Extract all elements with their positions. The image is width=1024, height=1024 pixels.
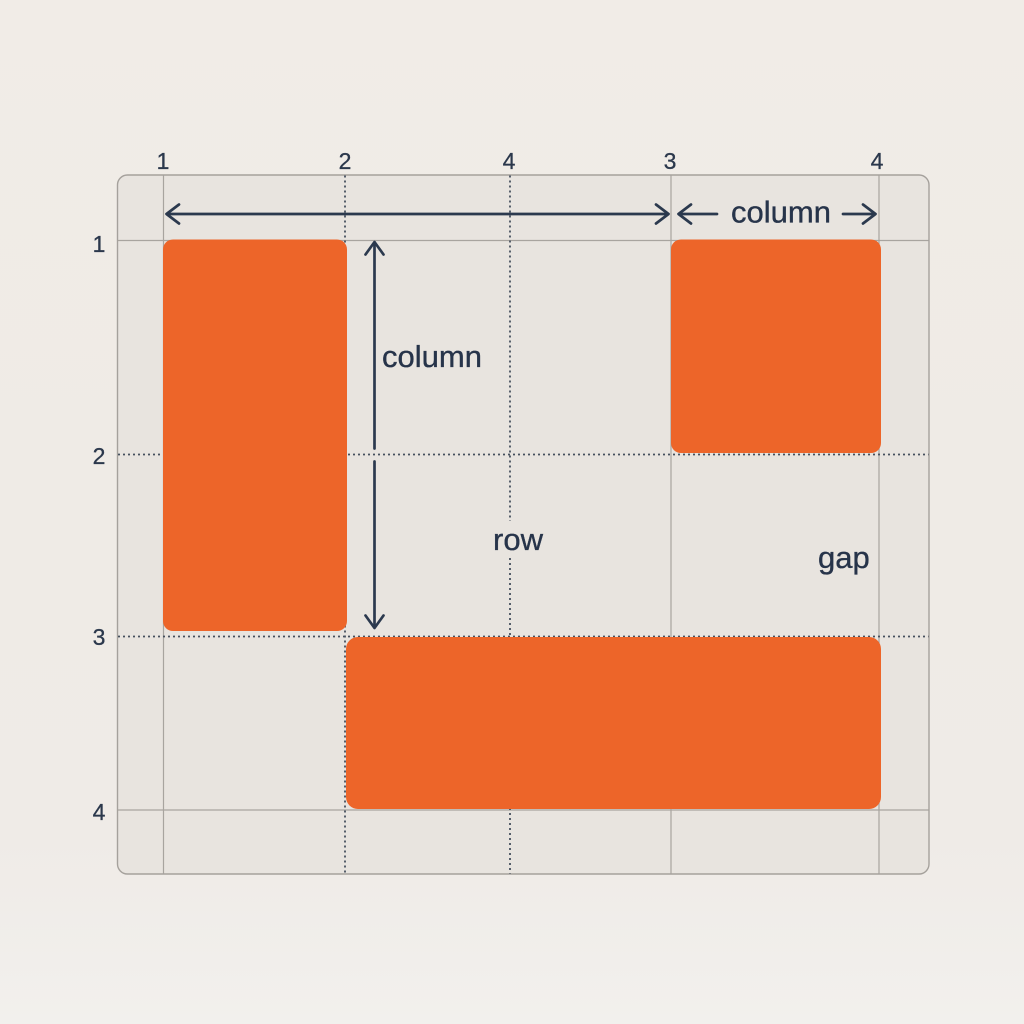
svg-text:3: 3 [664, 148, 677, 174]
svg-text:1: 1 [93, 231, 106, 257]
svg-text:2: 2 [339, 148, 352, 174]
svg-text:row: row [493, 522, 544, 557]
svg-text:1: 1 [157, 148, 170, 174]
svg-text:column: column [731, 195, 831, 230]
svg-text:3: 3 [93, 624, 106, 650]
svg-text:4: 4 [93, 799, 106, 825]
svg-text:4: 4 [503, 148, 516, 174]
svg-text:gap: gap [818, 540, 870, 575]
svg-text:column: column [382, 339, 482, 374]
svg-text:2: 2 [93, 443, 106, 469]
svg-text:4: 4 [871, 148, 884, 174]
